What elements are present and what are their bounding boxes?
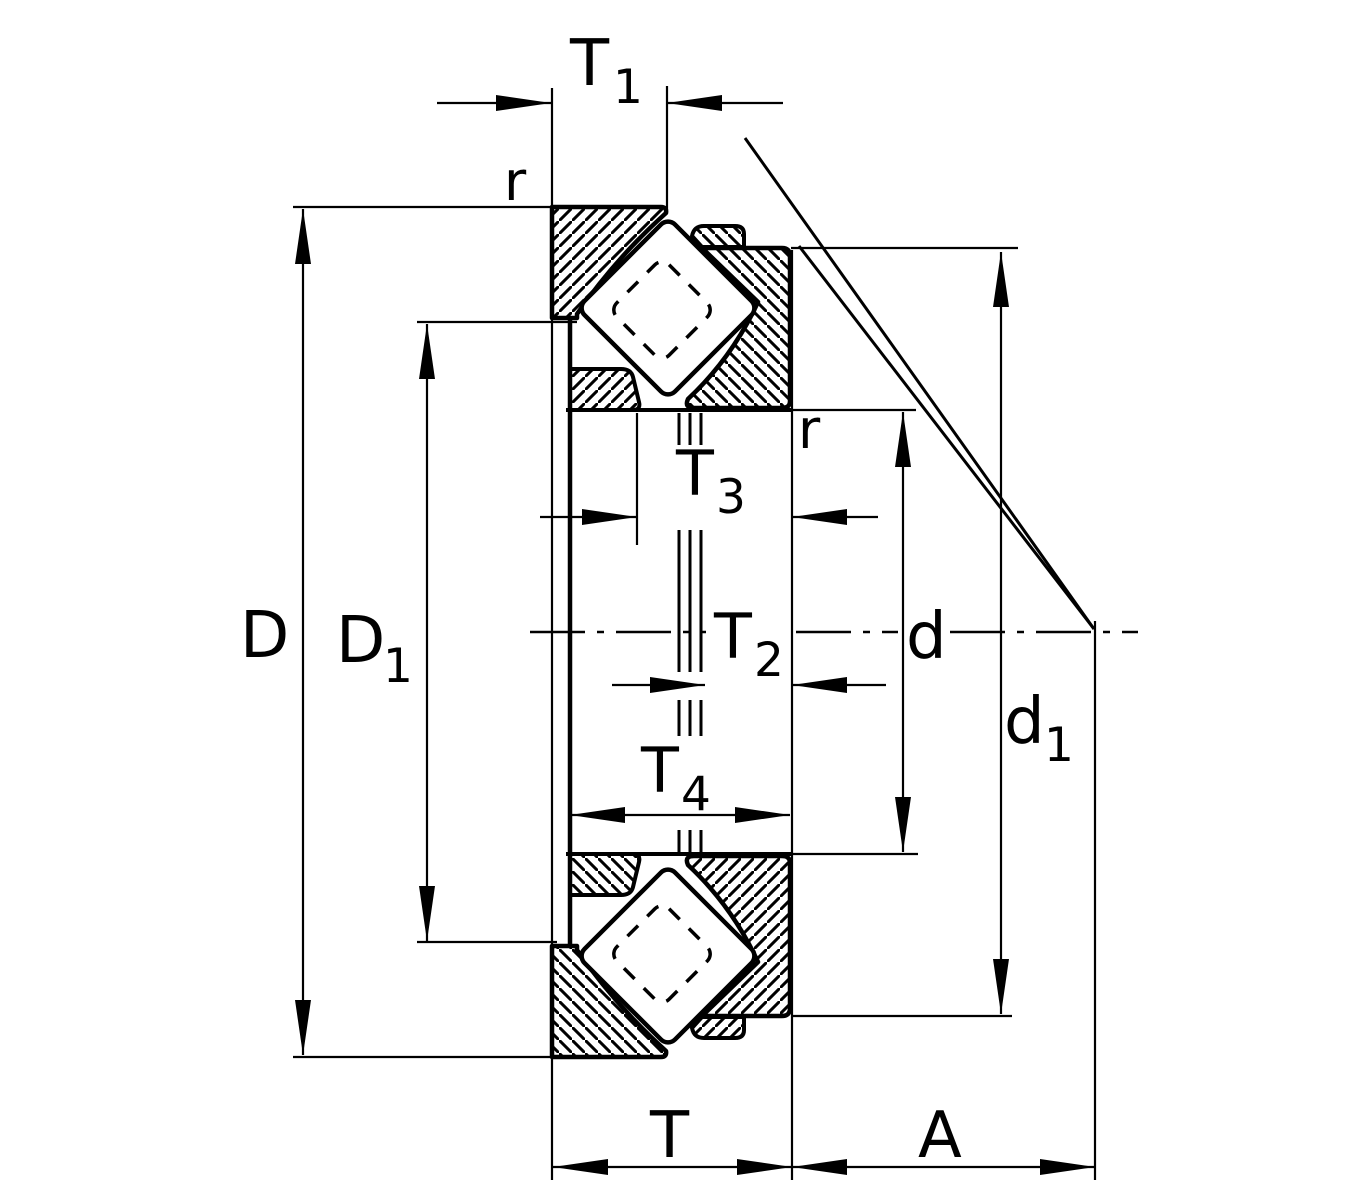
convergence-lines [745,138,1094,629]
label-T1-sub: 1 [613,60,643,115]
shaft-washer-upper-lip [570,369,639,410]
drawing-canvas: T 1 r D D 1 T 3 r T 2 T 4 d d 1 T A [0,0,1350,1200]
label-T1: T [569,27,610,101]
bearing-dimension-drawing: T 1 r D D 1 T 3 r T 2 T 4 d d 1 T A [0,0,1350,1200]
label-d1: d [1004,685,1045,759]
label-D: D [240,599,289,673]
label-T4: T [640,734,680,807]
housing-washer-lower-rim [692,1017,744,1038]
label-T: T [649,1099,690,1173]
label-D1: D [336,604,385,678]
housing-washer-upper-rim [692,226,744,247]
label-T3-sub: 3 [716,470,746,525]
label-d: d [906,600,947,674]
lower-bearing-unit [552,854,790,1057]
label-T2: T [713,600,753,673]
label-A: A [918,1099,962,1173]
label-r-top: r [504,150,527,213]
label-D1-sub: 1 [383,639,413,694]
label-T4-sub: 4 [681,767,711,822]
upper-bearing-unit [552,207,790,410]
label-T3: T [675,437,715,510]
shaft-washer-lower-lip [570,854,639,895]
label-T2-sub: 2 [754,633,784,688]
label-d1-sub: 1 [1044,718,1074,773]
label-r-mid: r [798,398,821,461]
